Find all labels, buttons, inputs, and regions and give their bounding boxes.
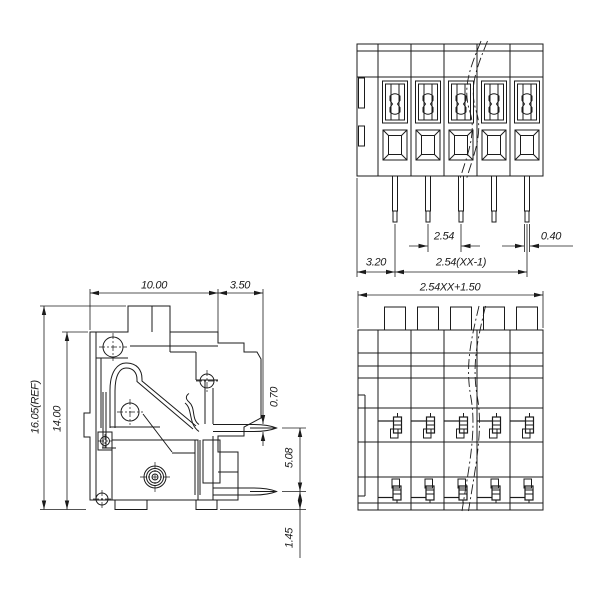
technical-drawing-terminal-block: 2.54 0.40 3.20 2.54(XX-1) 10.00 3.50 16.… bbox=[0, 0, 600, 600]
side-body-outline bbox=[84, 306, 261, 500]
dim-front-pin-width-label: 0.40 bbox=[540, 232, 562, 243]
drawing-linework bbox=[0, 0, 600, 600]
side-view-drawing bbox=[40, 289, 306, 558]
dim-bottom-overall-width-label: 2.54XX+1.50 bbox=[419, 283, 482, 294]
dim-front-first-pin-offset-label: 3.20 bbox=[365, 258, 387, 269]
dim-side-body-width-label: 10.00 bbox=[140, 281, 168, 292]
dim-side-pin-row-pitch-label: 5.08 bbox=[285, 447, 296, 469]
bottom-tabs bbox=[385, 307, 538, 330]
dim-front-pitch-label: 2.54 bbox=[433, 232, 455, 243]
dim-side-pin-thickness-label: 0.70 bbox=[270, 386, 281, 408]
mounting-foot bbox=[196, 500, 217, 510]
bottom-view-drawing bbox=[358, 291, 543, 511]
clamp-spring bbox=[102, 363, 196, 452]
dim-side-flange-depth-label: 3.50 bbox=[229, 281, 251, 292]
bottom-body-outline bbox=[358, 330, 543, 510]
dim-side-body-height-label: 14.00 bbox=[53, 405, 64, 433]
side-dimensions bbox=[40, 289, 306, 558]
dim-front-pin-span-label: 2.54(XX-1) bbox=[435, 258, 487, 269]
dim-side-overall-height-label: 16.05(REF) bbox=[31, 379, 42, 435]
front-poles bbox=[383, 81, 540, 222]
dim-side-pin-standoff-label: 1.45 bbox=[285, 527, 296, 549]
mounting-foot bbox=[115, 500, 147, 510]
